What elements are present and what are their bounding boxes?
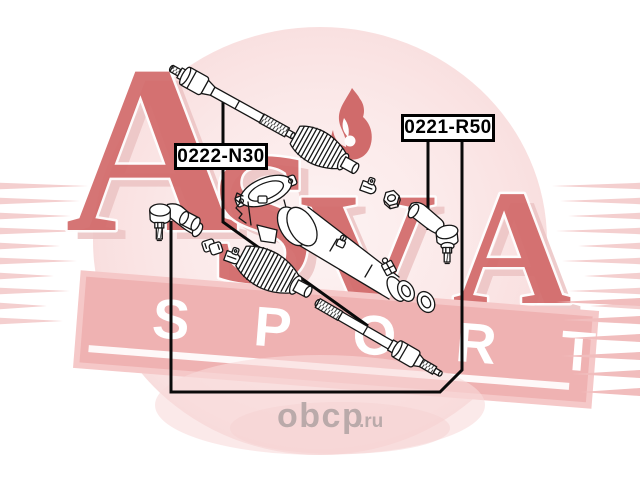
part-label-0221-R50: 0221-R50 [401, 114, 495, 142]
site-watermark-suffix: .ru [359, 411, 383, 432]
site-watermark-main: obcp [277, 397, 364, 435]
svg-text:P: P [252, 294, 294, 360]
diagram-canvas: A S V A A S V A S P O R [0, 0, 640, 480]
svg-text:R: R [454, 310, 499, 376]
part-code: 0222-N30 [177, 146, 264, 168]
screenshot-root: A S V A A S V A S P O R [0, 0, 640, 480]
part-code: 0221-R50 [404, 117, 491, 139]
part-label-0222-N30: 0222-N30 [174, 143, 268, 170]
